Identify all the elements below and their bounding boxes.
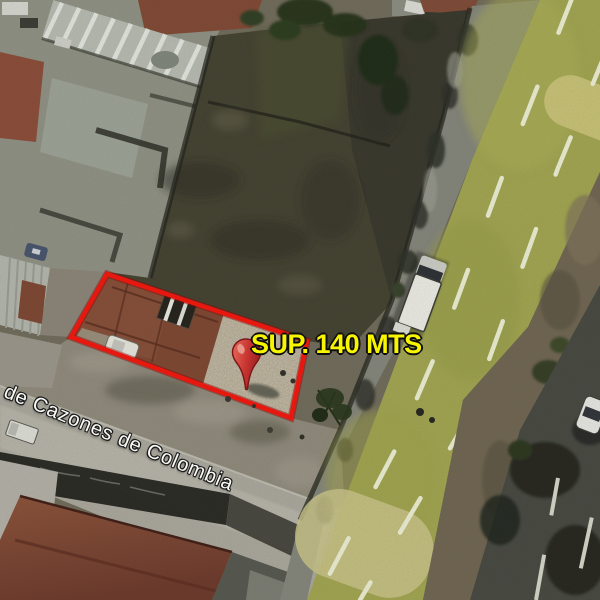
image-grain-overlay bbox=[0, 0, 600, 600]
satellite-map-canvas[interactable]: de Cazones de Colombia SUP. 140 MTS bbox=[0, 0, 600, 600]
aerial-imagery bbox=[0, 0, 600, 600]
